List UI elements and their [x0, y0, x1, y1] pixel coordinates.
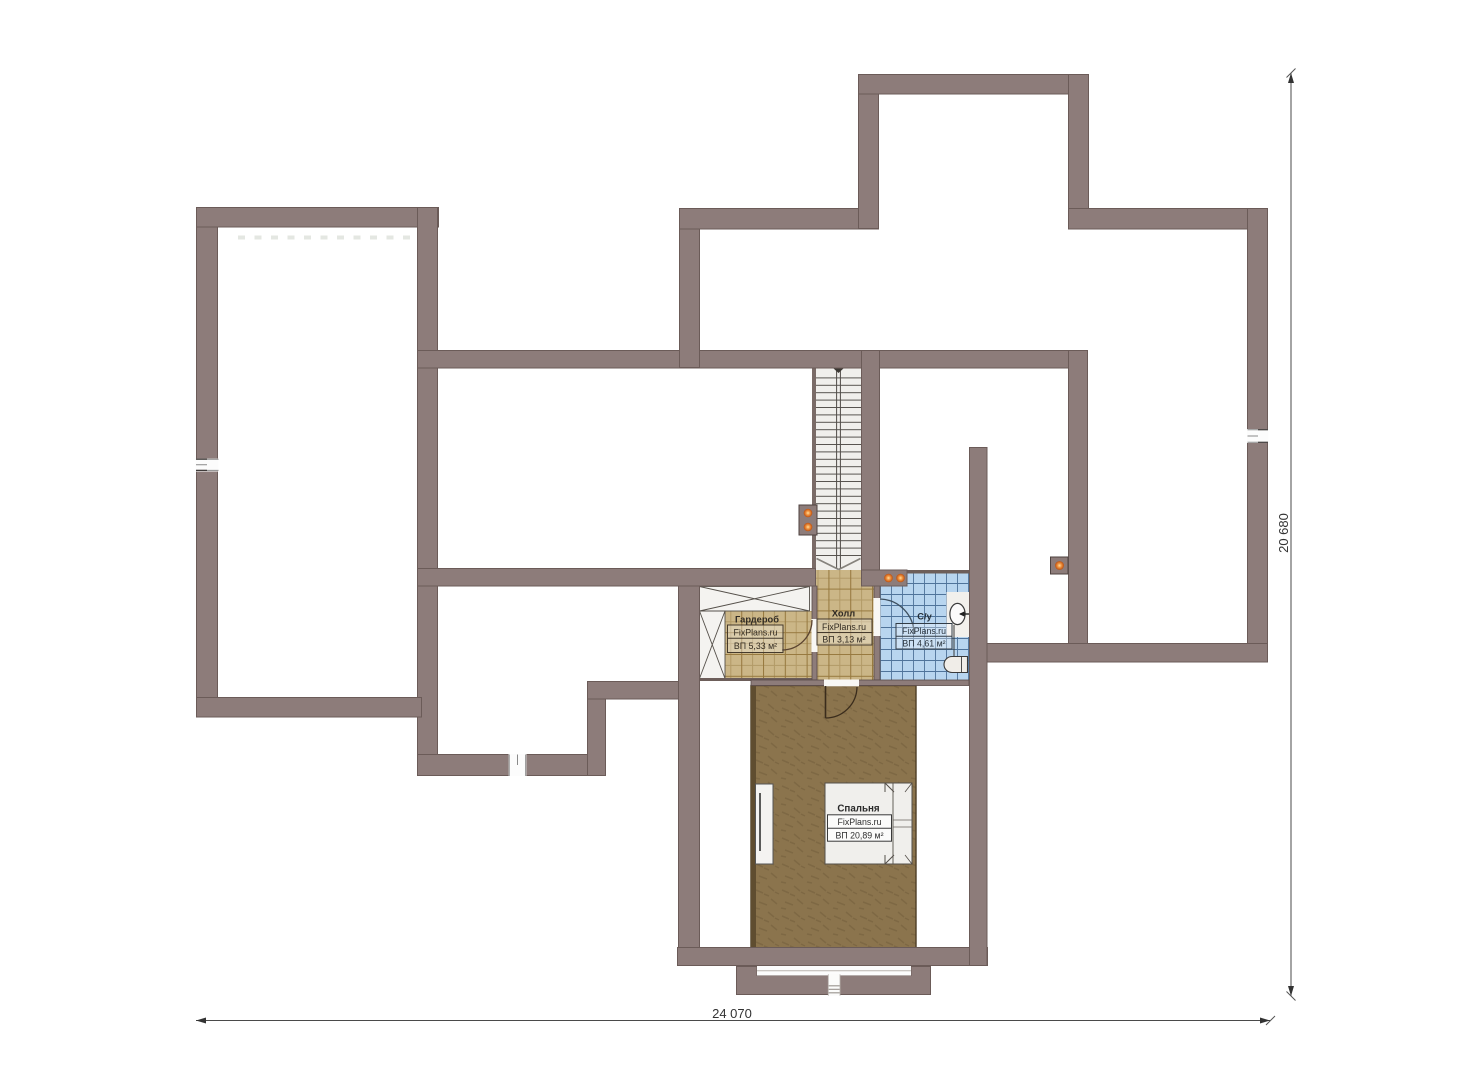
- svg-text:ВП 5,33 м²: ВП 5,33 м²: [734, 641, 777, 651]
- svg-text:FixPlans.ru: FixPlans.ru: [902, 626, 946, 636]
- svg-text:24 070: 24 070: [712, 1006, 752, 1021]
- svg-text:ВП 3,13 м²: ВП 3,13 м²: [822, 635, 865, 645]
- svg-text:FixPlans.ru: FixPlans.ru: [734, 628, 778, 638]
- svg-text:FixPlans.ru: FixPlans.ru: [822, 622, 866, 632]
- svg-text:20 680: 20 680: [1276, 513, 1291, 553]
- svg-text:ВП 20,89 м²: ВП 20,89 м²: [835, 830, 883, 840]
- svg-text:Спальня: Спальня: [837, 804, 880, 815]
- svg-text:ВП 4,61 м²: ВП 4,61 м²: [902, 638, 945, 648]
- svg-text:С/у: С/у: [917, 612, 932, 622]
- svg-text:Холл: Холл: [832, 609, 855, 619]
- svg-text:Гардероб: Гардероб: [735, 615, 779, 625]
- svg-text:FixPlans.ru: FixPlans.ru: [838, 817, 882, 827]
